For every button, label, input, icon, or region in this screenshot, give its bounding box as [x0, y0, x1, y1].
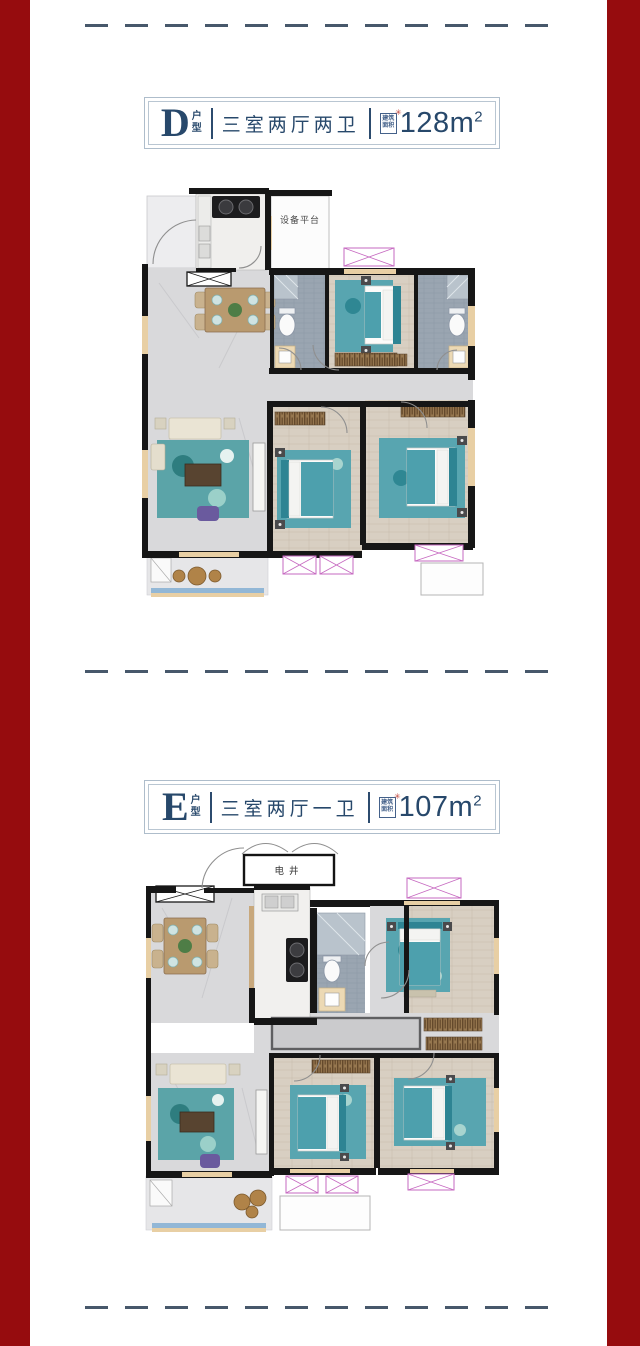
stamp-asterisk-icon: ✳: [395, 109, 402, 117]
electric-shaft-label: 电井: [274, 865, 303, 877]
toilet-icon: [449, 314, 465, 336]
building-area-stamp-icon: 建筑 面积 ✳: [380, 113, 397, 134]
left-red-border: [0, 0, 30, 1346]
plan-d-dining-table: [195, 288, 275, 332]
divider-bar: [368, 792, 370, 823]
unit-e-rooms-label: 三室两厅一卫: [221, 794, 359, 821]
unit-e-type-label: 户 型: [191, 795, 201, 819]
equipment-platform-label: 设备平台: [280, 214, 320, 225]
middle-dashed-divider: [85, 670, 565, 673]
balcony-table: [188, 567, 206, 585]
toilet-icon: [324, 960, 340, 982]
bottom-dashed-divider: [85, 1306, 565, 1309]
stamp-asterisk-icon: ✳: [394, 793, 401, 801]
unit-d-title-box: D 户 型 三室两厅两卫 建筑 面积 ✳ 128m2: [144, 97, 500, 149]
unit-d-type-label: 户 型: [192, 111, 202, 135]
tv-console: [256, 1090, 267, 1154]
unit-d-letter-group: D 户 型: [161, 105, 202, 141]
tv-console: [253, 443, 265, 511]
plan-e-bedroom-1: [386, 918, 452, 997]
coffee-table: [185, 464, 221, 486]
unit-e-area-value: 107m2: [399, 791, 482, 824]
flyer-page: D 户 型 三室两厅两卫 建筑 面积 ✳ 128m2: [0, 0, 640, 1346]
sofa: [170, 1064, 226, 1084]
unit-e-title-box: E 户 型 三室两厅一卫 建筑 面积 ✳ 107m2: [144, 780, 500, 834]
unit-e-letter: E: [162, 789, 189, 825]
unit-e-area-group: 建筑 面积 ✳ 107m2: [379, 791, 482, 824]
divider-bar: [210, 792, 212, 823]
accent-chair: [200, 1154, 220, 1168]
plan-d-lower-balcony-outline: [421, 563, 483, 595]
coffee-table: [180, 1112, 214, 1132]
unit-e-floor-plan: 电井: [142, 838, 508, 1238]
top-dashed-divider: [85, 24, 565, 27]
wardrobe: [426, 1037, 482, 1050]
plan-e-electric-shaft: 电井: [242, 843, 338, 885]
unit-d-rooms-label: 三室两厅两卫: [222, 110, 360, 137]
unit-d-area-value: 128m2: [400, 107, 483, 140]
unit-d-area-group: 建筑 面积 ✳ 128m2: [380, 107, 483, 140]
plan-d-flue-box: [187, 272, 231, 286]
divider-bar: [369, 108, 371, 139]
building-area-stamp-icon: 建筑 面积 ✳: [379, 797, 396, 818]
unit-d-floor-plan: 设备平台: [139, 188, 505, 602]
unit-e-letter-group: E 户 型: [162, 789, 201, 825]
accent-chair: [197, 506, 219, 521]
hall-runner-rug: [365, 354, 407, 366]
plan-e-bedroom-3: [394, 1075, 486, 1150]
wardrobe: [275, 412, 325, 425]
toilet-icon: [279, 314, 295, 336]
plan-e-lower-outline: [280, 1196, 370, 1230]
wardrobe: [424, 1018, 482, 1031]
unit-d-letter: D: [161, 105, 190, 141]
sofa: [169, 418, 221, 439]
right-red-border: [607, 0, 640, 1346]
divider-bar: [211, 108, 213, 139]
plan-d-floors: [147, 194, 473, 595]
wardrobe: [312, 1060, 370, 1073]
